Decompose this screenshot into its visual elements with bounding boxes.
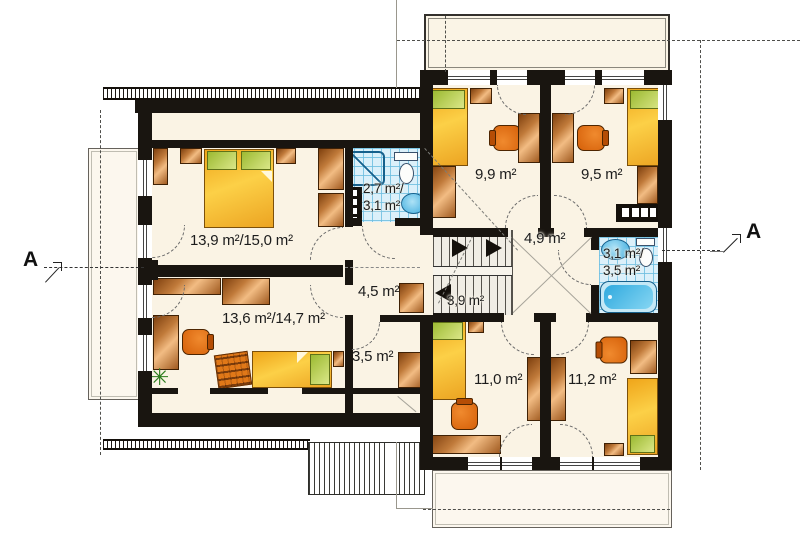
- wall: [591, 237, 599, 250]
- wall: [584, 228, 658, 237]
- wall: [345, 260, 353, 285]
- chair: [493, 125, 521, 151]
- wardrobe: [153, 148, 168, 185]
- wall: [532, 457, 560, 470]
- terrace-door: [560, 457, 592, 470]
- wardrobe: [318, 148, 344, 190]
- terrace-door: [502, 457, 532, 470]
- chair: [600, 337, 628, 364]
- room-area-label: 4,5 m²: [358, 283, 399, 300]
- roof-outline: [397, 40, 800, 41]
- nightstand: [470, 88, 492, 104]
- roof-outline: [700, 40, 701, 470]
- wall: [595, 70, 602, 85]
- nightstand: [333, 351, 344, 367]
- stair-landing: [433, 266, 512, 276]
- exterior-stairs-gap: [386, 443, 395, 494]
- terrace-south: [432, 470, 672, 528]
- balcony-north: [424, 14, 670, 72]
- pillow: [432, 90, 465, 109]
- chair: [577, 125, 605, 151]
- wardrobe: [637, 166, 658, 204]
- nightstand: [604, 443, 624, 456]
- wall: [433, 228, 508, 237]
- window: [594, 457, 640, 470]
- room-area-label: 3,1 m²: [363, 198, 400, 213]
- room-area-label: 2,7 m²/: [363, 181, 404, 196]
- desk: [518, 113, 540, 163]
- room-area-label: 3,1 m²/: [603, 246, 644, 261]
- room-area-label: 4,9 m²: [524, 230, 565, 247]
- section-line: [345, 267, 420, 268]
- room-area-label: 3,5 m²: [603, 263, 640, 278]
- wall: [658, 70, 672, 85]
- section-marker-a-left: A: [23, 248, 38, 272]
- roof-outline: [100, 110, 101, 455]
- wall: [527, 70, 565, 85]
- room-area-label: 13,9 m²/15,0 m²: [190, 232, 293, 249]
- balcony-opening: [178, 388, 210, 394]
- desk: [222, 278, 270, 305]
- wall: [658, 262, 672, 470]
- roof-edge-line: [396, 0, 397, 88]
- room-area-label: 9,5 m²: [581, 166, 622, 183]
- roof-edge-line: [396, 442, 397, 508]
- wall: [420, 70, 448, 85]
- wall: [138, 413, 433, 427]
- balcony-door: [565, 70, 595, 85]
- window: [448, 70, 490, 85]
- chair: [182, 329, 210, 355]
- wardrobe: [318, 193, 344, 227]
- room-area-label: 11,2 m²: [568, 371, 616, 388]
- wall: [640, 457, 672, 470]
- balcony-opening: [268, 388, 302, 394]
- wall: [345, 148, 353, 227]
- chair: [451, 402, 478, 430]
- pillow: [310, 354, 330, 385]
- wall: [420, 70, 433, 235]
- terrace-dash-line: [423, 509, 670, 510]
- wall: [540, 322, 551, 457]
- balcony-door: [497, 70, 527, 85]
- wardrobe: [429, 166, 456, 218]
- wall: [135, 100, 425, 113]
- desk: [153, 315, 179, 370]
- window: [468, 457, 500, 470]
- desk: [630, 340, 657, 374]
- toilet: [394, 152, 418, 161]
- bathtub: [600, 281, 657, 313]
- wall: [420, 457, 468, 470]
- chimney-duct: [616, 204, 658, 222]
- wall: [152, 265, 343, 277]
- wall: [658, 120, 672, 228]
- rug: [214, 351, 252, 389]
- desk: [552, 113, 574, 163]
- nightstand: [276, 148, 296, 164]
- stairs-up-arrow-icon: [486, 239, 502, 257]
- wall: [540, 85, 551, 228]
- section-arrow-head-right: [732, 234, 741, 243]
- balcony-axis-line: [445, 16, 446, 72]
- plant: ✳: [150, 366, 169, 389]
- room-area-label: 13,6 m²/14,7 m²: [222, 310, 325, 327]
- wall: [420, 315, 433, 470]
- balcony-door: [138, 225, 152, 258]
- wall: [591, 285, 599, 313]
- pillow: [630, 435, 655, 453]
- single-bed: [429, 88, 468, 166]
- wall: [433, 313, 504, 322]
- wall: [138, 260, 158, 280]
- wall: [586, 313, 658, 322]
- floor-plan: ✳: [0, 0, 800, 550]
- exterior-stairs: [308, 442, 425, 495]
- stair-edge-line: [512, 230, 513, 315]
- pillow: [431, 322, 463, 340]
- window: [658, 85, 672, 120]
- pillow: [241, 151, 271, 170]
- nightstand: [604, 88, 624, 104]
- window: [138, 160, 152, 196]
- room-area-label: 11,0 m²: [474, 371, 522, 388]
- pillow: [207, 151, 237, 170]
- balcony-door: [138, 285, 152, 318]
- wall: [490, 70, 497, 85]
- room-area-label: 3,9 m²: [447, 293, 484, 308]
- room-area-label: 3,5 m²: [352, 348, 393, 365]
- wardrobe: [399, 283, 424, 313]
- balcony-railing-top: [103, 87, 423, 100]
- room-area-label: 9,9 m²: [475, 166, 516, 183]
- section-tail-right: [710, 251, 724, 252]
- blanket-fold: [297, 352, 308, 363]
- balcony-railing-bottom: [103, 439, 310, 450]
- window: [138, 335, 152, 371]
- side-terrace-west: [88, 148, 140, 400]
- blanket-fold: [261, 171, 272, 182]
- double-bed: [204, 149, 274, 228]
- window: [658, 228, 672, 262]
- wardrobe: [550, 357, 566, 421]
- window: [602, 70, 644, 85]
- wall: [148, 140, 425, 148]
- wall: [534, 313, 556, 322]
- single-bed: [627, 378, 658, 455]
- toilet: [636, 238, 655, 246]
- single-bed: [252, 351, 332, 388]
- desk: [429, 435, 501, 454]
- wall: [345, 218, 362, 226]
- section-arrow-head-left: [53, 262, 62, 271]
- section-marker-a-right: A: [746, 220, 761, 244]
- single-bed: [428, 320, 466, 400]
- nightstand: [180, 148, 202, 164]
